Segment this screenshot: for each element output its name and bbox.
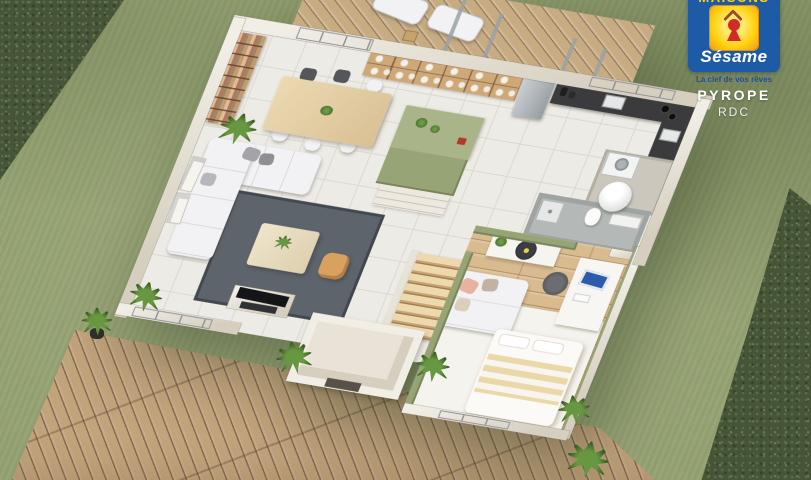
logo-yellow-square: [710, 6, 758, 50]
sun-lounger: [370, 0, 432, 27]
brand-top-label: MAISONS: [688, 0, 780, 5]
floor-plan-scene: MAISONS Sésame La clef de vos rêves PYRO…: [0, 0, 811, 480]
keyhole-circle-icon: [728, 19, 740, 31]
model-name: PYROPE: [688, 87, 780, 103]
logo-blue-square: MAISONS Sésame: [688, 0, 780, 72]
floor-label: RDC: [688, 105, 780, 119]
terrace-side-table: [402, 30, 419, 43]
brand-tagline: La clef de vos rêves: [688, 75, 780, 84]
brand-name: Sésame: [688, 47, 780, 67]
